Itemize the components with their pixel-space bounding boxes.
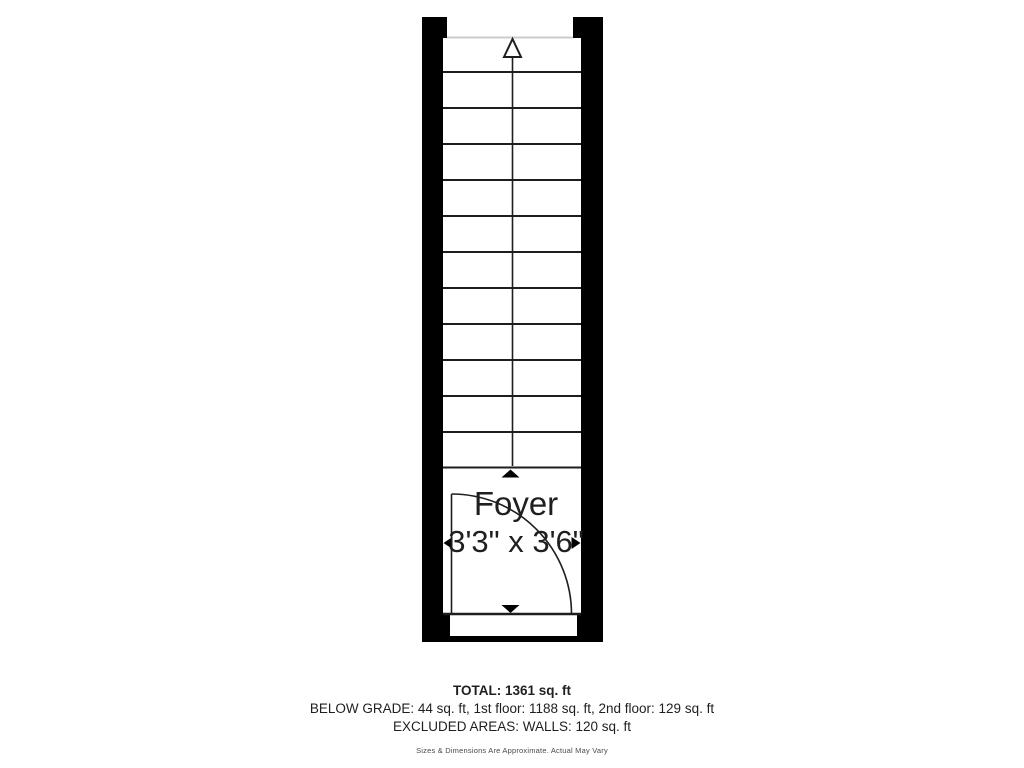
wall-left-top-shoulder: [443, 17, 447, 38]
wall-bottom-band: [422, 636, 603, 642]
wall-left: [422, 17, 443, 642]
total-area-text: TOTAL: 1361 sq. ft: [0, 682, 1024, 700]
floor-breakdown-text: BELOW GRADE: 44 sq. ft, 1st floor: 1188 …: [0, 700, 1024, 718]
area-summary: TOTAL: 1361 sq. ft BELOW GRADE: 44 sq. f…: [0, 682, 1024, 755]
excluded-areas-text: EXCLUDED AREAS: WALLS: 120 sq. ft: [0, 718, 1024, 736]
room-name-label: Foyer: [474, 485, 558, 522]
floorplan-drawing: Foyer 3'3" x 3'6": [0, 0, 1024, 768]
room-dimensions-label: 3'3" x 3'6": [448, 524, 584, 559]
up-arrow-icon: [504, 39, 521, 57]
floorplan-page: Foyer 3'3" x 3'6" TOTAL: 1361 sq. ft BEL…: [0, 0, 1024, 768]
up-triangle-icon: [502, 470, 520, 478]
wall-right: [581, 17, 603, 642]
wall-right-top-shoulder: [573, 17, 581, 38]
disclaimer-text: Sizes & Dimensions Are Approximate. Actu…: [0, 746, 1024, 755]
down-triangle-icon: [502, 605, 520, 613]
